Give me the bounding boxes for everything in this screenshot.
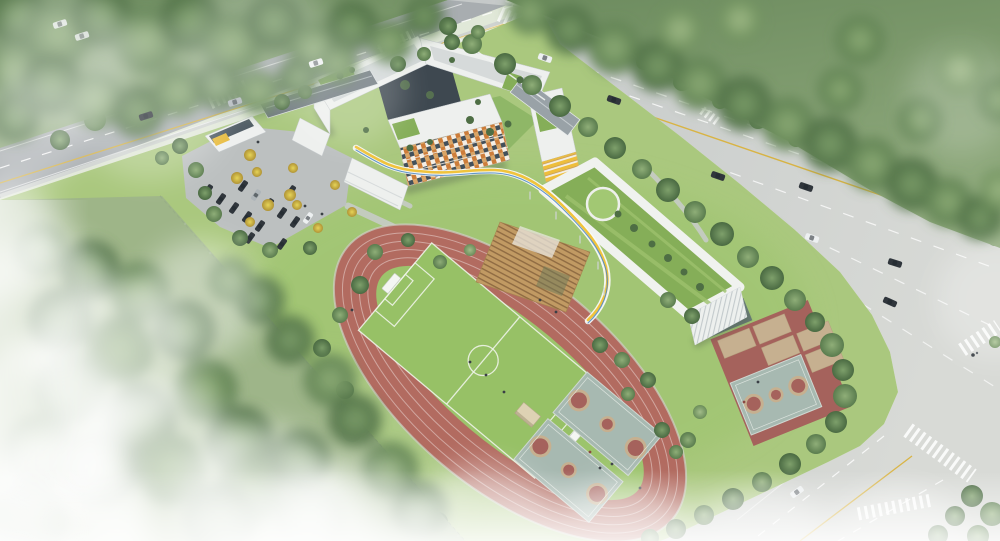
circular-roof-lawn <box>587 188 619 220</box>
bottom-fog-band <box>0 470 1000 541</box>
campus-scene <box>0 0 1000 541</box>
left-fog-band <box>0 200 90 541</box>
aerial-rendering <box>0 0 1000 541</box>
